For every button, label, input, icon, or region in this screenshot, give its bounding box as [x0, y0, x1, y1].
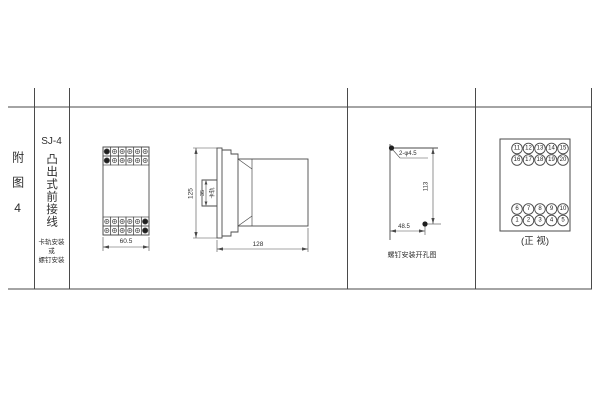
svg-text:6: 6	[515, 206, 519, 212]
svg-text:2: 2	[527, 218, 531, 224]
terminal-number-circles: 1112131415161718192067891012345	[512, 143, 569, 226]
svg-text:12: 12	[525, 146, 532, 152]
svg-text:17: 17	[525, 157, 532, 163]
svg-text:4: 4	[550, 218, 554, 224]
svg-text:19: 19	[548, 157, 555, 163]
drawing-sheet: 1112131415161718192067891012345 附图4 SJ-4…	[0, 0, 600, 400]
svg-text:1: 1	[515, 218, 519, 224]
svg-text:3: 3	[538, 218, 542, 224]
side-depth-dimension: 128	[240, 242, 276, 249]
rail-dimension: 35	[200, 182, 206, 204]
drill-view-caption: 螺钉安装开孔图	[381, 252, 443, 259]
svg-text:14: 14	[548, 146, 555, 152]
drill-vertical-dimension: 113	[424, 174, 431, 198]
svg-text:5: 5	[561, 218, 565, 224]
type-name-label: 凸出式前接线	[45, 153, 57, 243]
side-height-dimension: 125	[187, 181, 194, 205]
top-hole	[389, 145, 394, 150]
svg-text:11: 11	[514, 146, 521, 152]
svg-text:20: 20	[560, 157, 567, 163]
mount-note-line2: 或	[34, 249, 69, 256]
svg-text:10: 10	[560, 206, 567, 212]
svg-text:18: 18	[537, 157, 544, 163]
holes-spec-label: 2-φ4.5	[399, 151, 417, 157]
drill-horizontal-dimension: 48.5	[392, 224, 416, 230]
svg-text:8: 8	[538, 206, 542, 212]
svg-text:7: 7	[527, 206, 531, 212]
front-width-dimension: 60.5	[103, 239, 149, 246]
drawing-canvas: 1112131415161718192067891012345	[0, 0, 600, 400]
svg-text:9: 9	[550, 206, 554, 212]
figure-number-label: 附图4	[11, 151, 24, 261]
bottom-hole	[422, 221, 427, 226]
front-view-drawing	[103, 147, 149, 251]
svg-text:15: 15	[560, 146, 567, 152]
sheet-grid	[8, 88, 592, 289]
terminal-view-drawing: 1112131415161718192067891012345	[500, 139, 570, 231]
svg-text:13: 13	[537, 146, 544, 152]
front-terminal-strips	[103, 147, 149, 235]
mount-note-line1: 卡轨安装	[34, 240, 69, 247]
mount-note-line3: 螺钉安装	[34, 258, 69, 265]
rail-label: 卡轨	[210, 182, 216, 204]
svg-text:16: 16	[514, 157, 521, 163]
model-label: SJ-4	[34, 137, 69, 148]
terminal-view-caption: (正 视)	[503, 237, 567, 247]
